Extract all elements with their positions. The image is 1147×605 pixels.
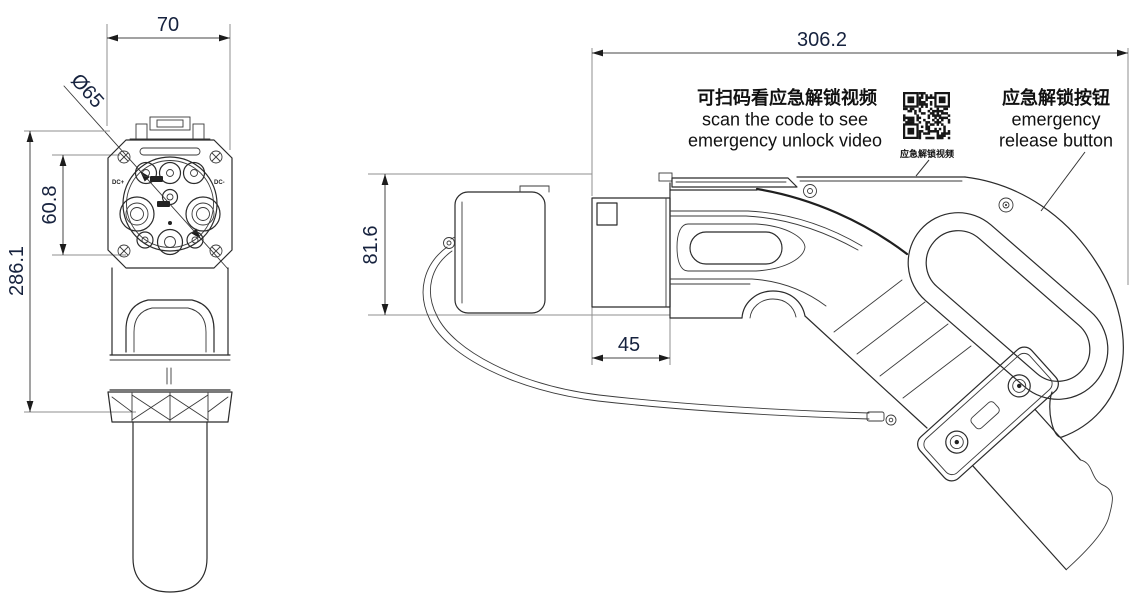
lanyard-cord xyxy=(423,247,896,425)
dim-pin-span-value: 60.8 xyxy=(39,186,61,225)
qr-note-line2: scan the code to see xyxy=(702,110,868,130)
front-view: 70 Ø65 60.8 286.1 xyxy=(6,14,232,592)
dim-nozzle-length-value: 45 xyxy=(618,334,640,356)
qr-note-line1: 可扫码看应急解锁视频 xyxy=(697,87,877,108)
dust-cap xyxy=(444,186,550,313)
side-view-gun xyxy=(592,173,1147,589)
label-dc-minus: DC- xyxy=(214,180,225,186)
qr-code: 应急解锁视频 xyxy=(900,90,954,176)
dimension-306-2: 306.2 xyxy=(592,29,1128,365)
button-note-line3: release button xyxy=(999,131,1113,151)
qr-note-line3: emergency unlock video xyxy=(688,131,882,151)
dim-body-height-value: 81.6 xyxy=(360,226,382,265)
technical-drawing-canvas: 70 Ø65 60.8 286.1 xyxy=(0,0,1147,605)
dim-total-length-value: 306.2 xyxy=(797,29,847,51)
qr-note: 可扫码看应急解锁视频 scan the code to see emergenc… xyxy=(688,87,882,151)
side-view: 306.2 81.6 45 可扫码看应急解锁视频 scan the code t… xyxy=(360,29,1147,589)
button-note-line1: 应急解锁按钮 xyxy=(1002,87,1110,108)
button-note: 应急解锁按钮 emergency release button xyxy=(999,87,1113,211)
dim-total-height-value: 286.1 xyxy=(6,246,28,296)
dim-width-value: 70 xyxy=(157,14,179,36)
dimension-286-1: 286.1 xyxy=(6,131,136,412)
front-view-connector: DC+ DC- xyxy=(108,117,232,592)
ev-charging-gun-drawing: 70 Ø65 60.8 286.1 xyxy=(0,0,1147,605)
cable-clamp xyxy=(914,343,1147,589)
dim-diameter-value: Ø65 xyxy=(66,70,108,113)
dimension-45: 45 xyxy=(592,318,670,365)
label-dc-plus: DC+ xyxy=(112,180,125,186)
dimension-81-6: 81.6 xyxy=(360,174,670,315)
button-note-line2: emergency xyxy=(1011,110,1100,130)
qr-caption: 应急解锁视频 xyxy=(900,148,954,159)
dimension-60-8: 60.8 xyxy=(39,155,126,255)
